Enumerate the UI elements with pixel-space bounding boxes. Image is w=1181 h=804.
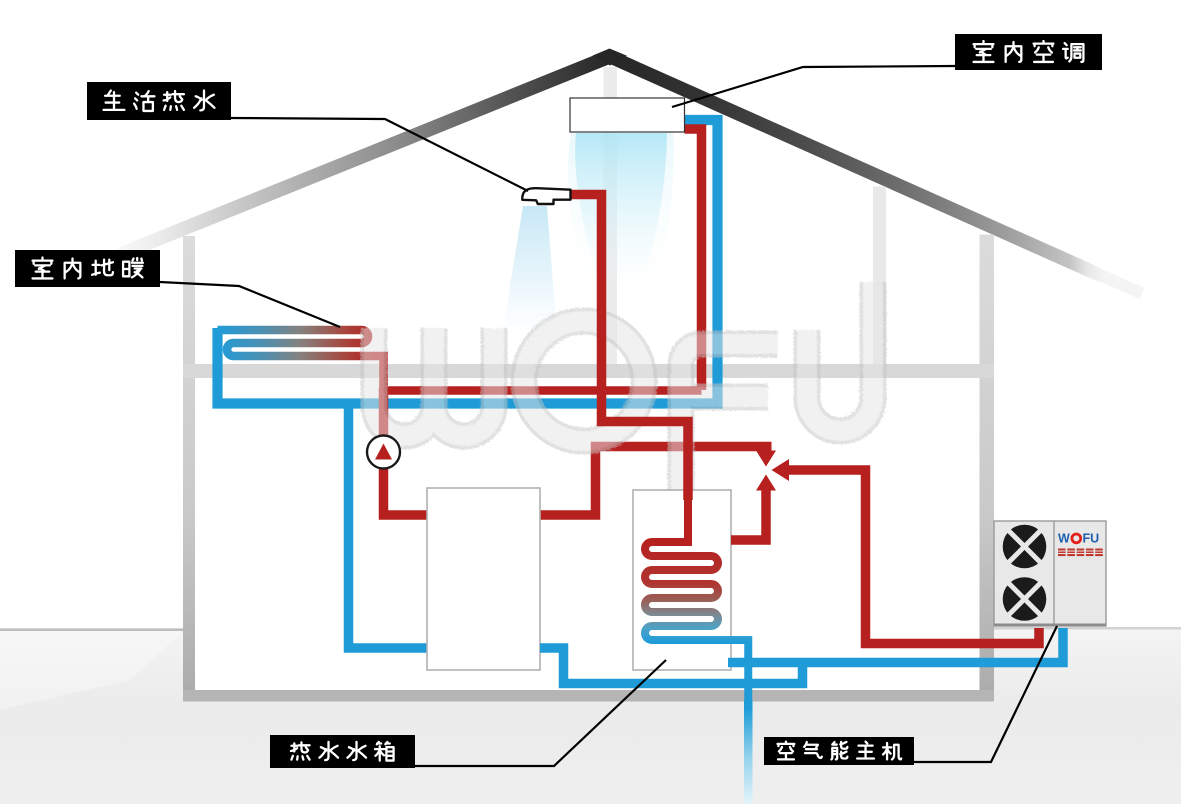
svg-text:W: W — [1058, 532, 1070, 546]
svg-text:FU: FU — [1083, 532, 1100, 546]
